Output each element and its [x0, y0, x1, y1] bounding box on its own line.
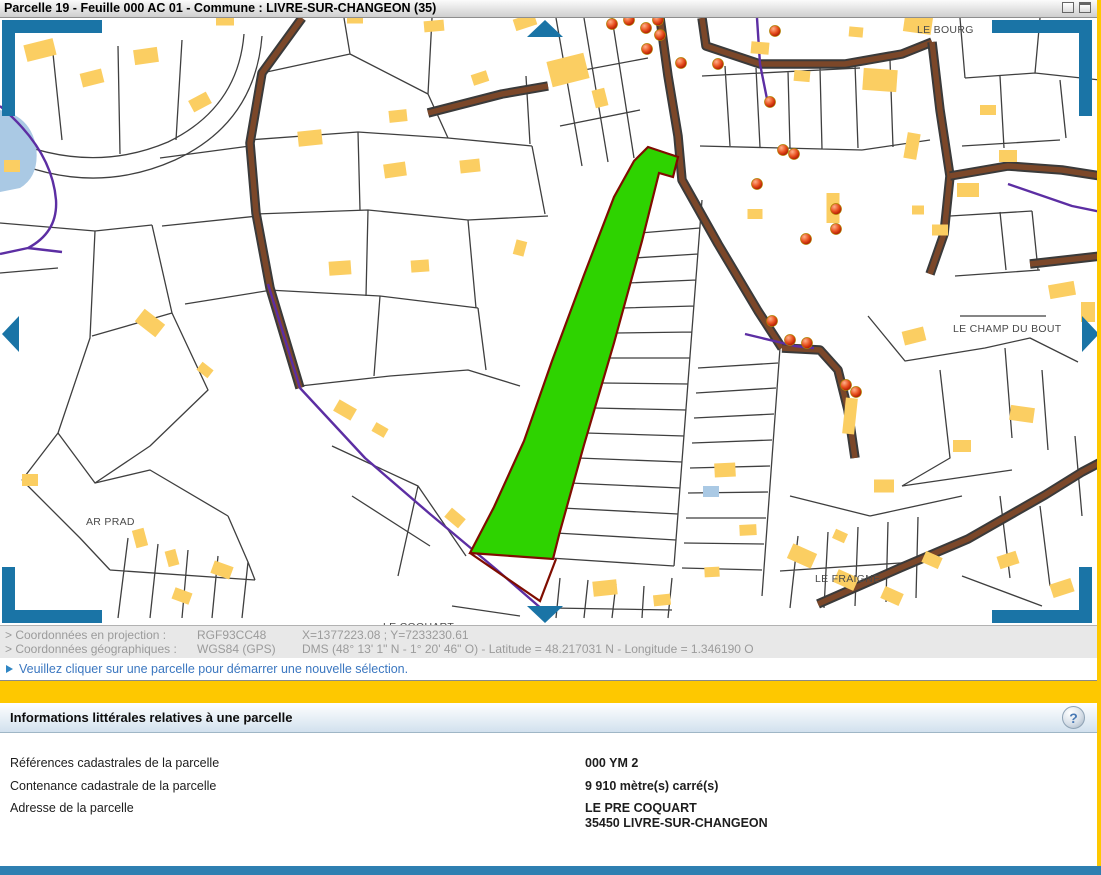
building — [862, 68, 897, 92]
building — [999, 150, 1017, 162]
geographic-coordinates-row: > Coordonnées géographiques : WGS84 (GPS… — [0, 642, 1101, 657]
address-marker — [676, 58, 687, 69]
address-marker — [655, 30, 666, 41]
address-marker — [831, 224, 842, 235]
building — [132, 528, 148, 548]
building — [592, 579, 617, 596]
building — [333, 399, 357, 420]
parcel-boundary — [22, 231, 95, 480]
roads — [250, 18, 1101, 604]
building — [1048, 281, 1076, 299]
parcel-boundary — [22, 480, 255, 618]
window-controls — [1062, 2, 1091, 13]
building — [748, 209, 763, 219]
parcel-area-value: 9 910 mètre(s) carré(s) — [585, 779, 718, 794]
separator-bar — [0, 681, 1101, 703]
building — [880, 586, 904, 606]
pan-left-button[interactable] — [2, 316, 19, 352]
address-marker — [607, 19, 618, 30]
map-window-title: Parcelle 19 - Feuille 000 AC 01 - Commun… — [4, 1, 436, 15]
map-place-label: LE FRAIGNE — [815, 573, 880, 585]
geographic-label: > Coordonnées géographiques : — [5, 642, 177, 656]
building — [592, 88, 609, 109]
question-mark-icon: ? — [1069, 710, 1078, 726]
building — [980, 105, 996, 115]
pan-up-left-button[interactable] — [2, 20, 102, 116]
building — [133, 47, 159, 65]
parcel-address-value: LE PRE COQUART 35450 LIVRE-SUR-CHANGEON — [585, 801, 768, 831]
parcel-address-label: Adresse de la parcelle — [10, 801, 134, 815]
building — [957, 183, 979, 197]
info-section-title: Informations littérales relatives à une … — [10, 710, 293, 725]
building — [471, 70, 490, 85]
road — [428, 86, 548, 113]
building — [832, 529, 848, 543]
selection-outline — [470, 553, 556, 601]
building — [388, 109, 407, 123]
building — [751, 41, 770, 55]
building — [216, 18, 234, 26]
building — [787, 543, 817, 568]
commune-boundary-line — [1008, 184, 1101, 212]
building — [135, 309, 165, 338]
building — [739, 524, 757, 536]
building — [383, 162, 407, 179]
address-marker — [653, 18, 664, 26]
building — [171, 587, 192, 604]
pan-down-right-button[interactable] — [992, 567, 1092, 623]
coordinates-panel: > Coordonnées en projection : RGF93CC48 … — [0, 625, 1101, 658]
geographic-system: WGS84 (GPS) — [197, 642, 276, 656]
address-line-2: 35450 LIVRE-SUR-CHANGEON — [585, 816, 768, 831]
address-marker — [789, 149, 800, 160]
address-marker — [785, 335, 796, 346]
building — [1049, 578, 1074, 598]
building — [196, 362, 213, 378]
map-place-label: AR PRAD — [86, 516, 135, 528]
address-marker — [624, 18, 635, 26]
map-window-titlebar: Parcelle 19 - Feuille 000 AC 01 - Commun… — [0, 0, 1101, 18]
projection-coordinates-row: > Coordonnées en projection : RGF93CC48 … — [0, 628, 1101, 643]
map-place-label: LE BOURG — [917, 24, 974, 36]
geographic-values: DMS (48° 13' 1" N - 1° 20' 46" O) - Lati… — [302, 642, 754, 656]
info-section-header: Informations littérales relatives à une … — [0, 703, 1101, 733]
message-text: Veuillez cliquer sur une parcelle pour d… — [19, 662, 408, 676]
parcel-boundary — [256, 210, 548, 308]
parcel-boundary — [58, 225, 208, 483]
building — [411, 259, 430, 272]
parcel-boundary — [300, 210, 520, 386]
building — [849, 26, 864, 37]
address-marker — [831, 204, 842, 215]
maximize-window-icon[interactable] — [1079, 2, 1091, 13]
address-marker — [642, 44, 653, 55]
building — [953, 440, 971, 452]
building — [80, 69, 105, 88]
building — [902, 327, 927, 346]
commune-boundary-line — [28, 248, 62, 252]
building — [932, 225, 948, 236]
pan-up-right-button[interactable] — [992, 20, 1092, 116]
parcel-boundary — [92, 313, 228, 516]
building — [704, 567, 720, 578]
building — [444, 508, 466, 529]
cadastre-window: Parcelle 19 - Feuille 000 AC 01 - Commun… — [0, 0, 1101, 875]
map-viewport[interactable]: LE BOURGLE CHAMP DU BOUTAR PRADLE COQUAR… — [0, 18, 1101, 625]
address-marker — [841, 380, 852, 391]
page-right-border — [1097, 0, 1101, 866]
building — [546, 53, 589, 87]
projection-system: RGF93CC48 — [197, 628, 266, 642]
address-marker — [713, 59, 724, 70]
map-canvas[interactable]: LE BOURGLE CHAMP DU BOUTAR PRADLE COQUAR… — [0, 18, 1101, 625]
address-marker — [770, 26, 781, 37]
address-marker — [767, 316, 778, 327]
building — [23, 38, 56, 62]
address-marker — [802, 338, 813, 349]
address-marker — [752, 179, 763, 190]
address-marker — [851, 387, 862, 398]
message-bar: Veuillez cliquer sur une parcelle pour d… — [0, 658, 1101, 681]
projection-values: X=1377223.08 ; Y=7233230.61 — [302, 628, 469, 642]
address-marker — [765, 97, 776, 108]
info-rows: Références cadastrales de la parcelle 00… — [0, 733, 1101, 866]
building — [996, 551, 1019, 570]
commune-boundary-line — [268, 284, 543, 610]
road — [782, 348, 855, 458]
building — [459, 158, 480, 173]
parcel-boundary — [52, 40, 182, 154]
bottom-bar — [0, 866, 1101, 875]
building — [424, 20, 445, 33]
address-marker — [778, 145, 789, 156]
building — [794, 70, 811, 82]
pan-down-left-button[interactable] — [2, 567, 102, 623]
road — [702, 18, 932, 64]
building — [653, 594, 671, 607]
parcel-references-label: Références cadastrales de la parcelle — [10, 756, 219, 770]
map-place-label: LE CHAMP DU BOUT — [953, 323, 1062, 335]
address-marker — [801, 234, 812, 245]
parcel-info-section: Informations littérales relatives à une … — [0, 703, 1101, 866]
building — [1009, 405, 1035, 423]
restore-window-icon[interactable] — [1062, 2, 1074, 13]
building — [903, 132, 920, 160]
parcel-area-label: Contenance cadastrale de la parcelle — [10, 779, 216, 793]
water-body — [703, 486, 719, 497]
building — [714, 462, 736, 477]
building — [165, 549, 180, 567]
message-arrow-icon — [6, 665, 13, 673]
pan-down-button[interactable] — [527, 606, 563, 623]
address-line-1: LE PRE COQUART — [585, 801, 768, 816]
building — [4, 160, 20, 172]
projection-label: > Coordonnées en projection : — [5, 628, 166, 642]
building — [188, 92, 212, 113]
building — [912, 206, 924, 215]
parcel-references-value: 000 YM 2 — [585, 756, 638, 771]
building — [874, 480, 894, 493]
address-marker — [641, 23, 652, 34]
building — [22, 474, 38, 486]
parcel-boundary — [868, 316, 1078, 516]
building — [513, 18, 538, 31]
building — [347, 18, 363, 24]
building — [297, 129, 322, 146]
building — [329, 260, 352, 276]
building — [371, 422, 388, 438]
selected-parcel[interactable] — [470, 147, 678, 559]
building — [513, 239, 528, 256]
selected-parcel-layer — [470, 147, 678, 601]
help-button[interactable]: ? — [1062, 706, 1085, 729]
